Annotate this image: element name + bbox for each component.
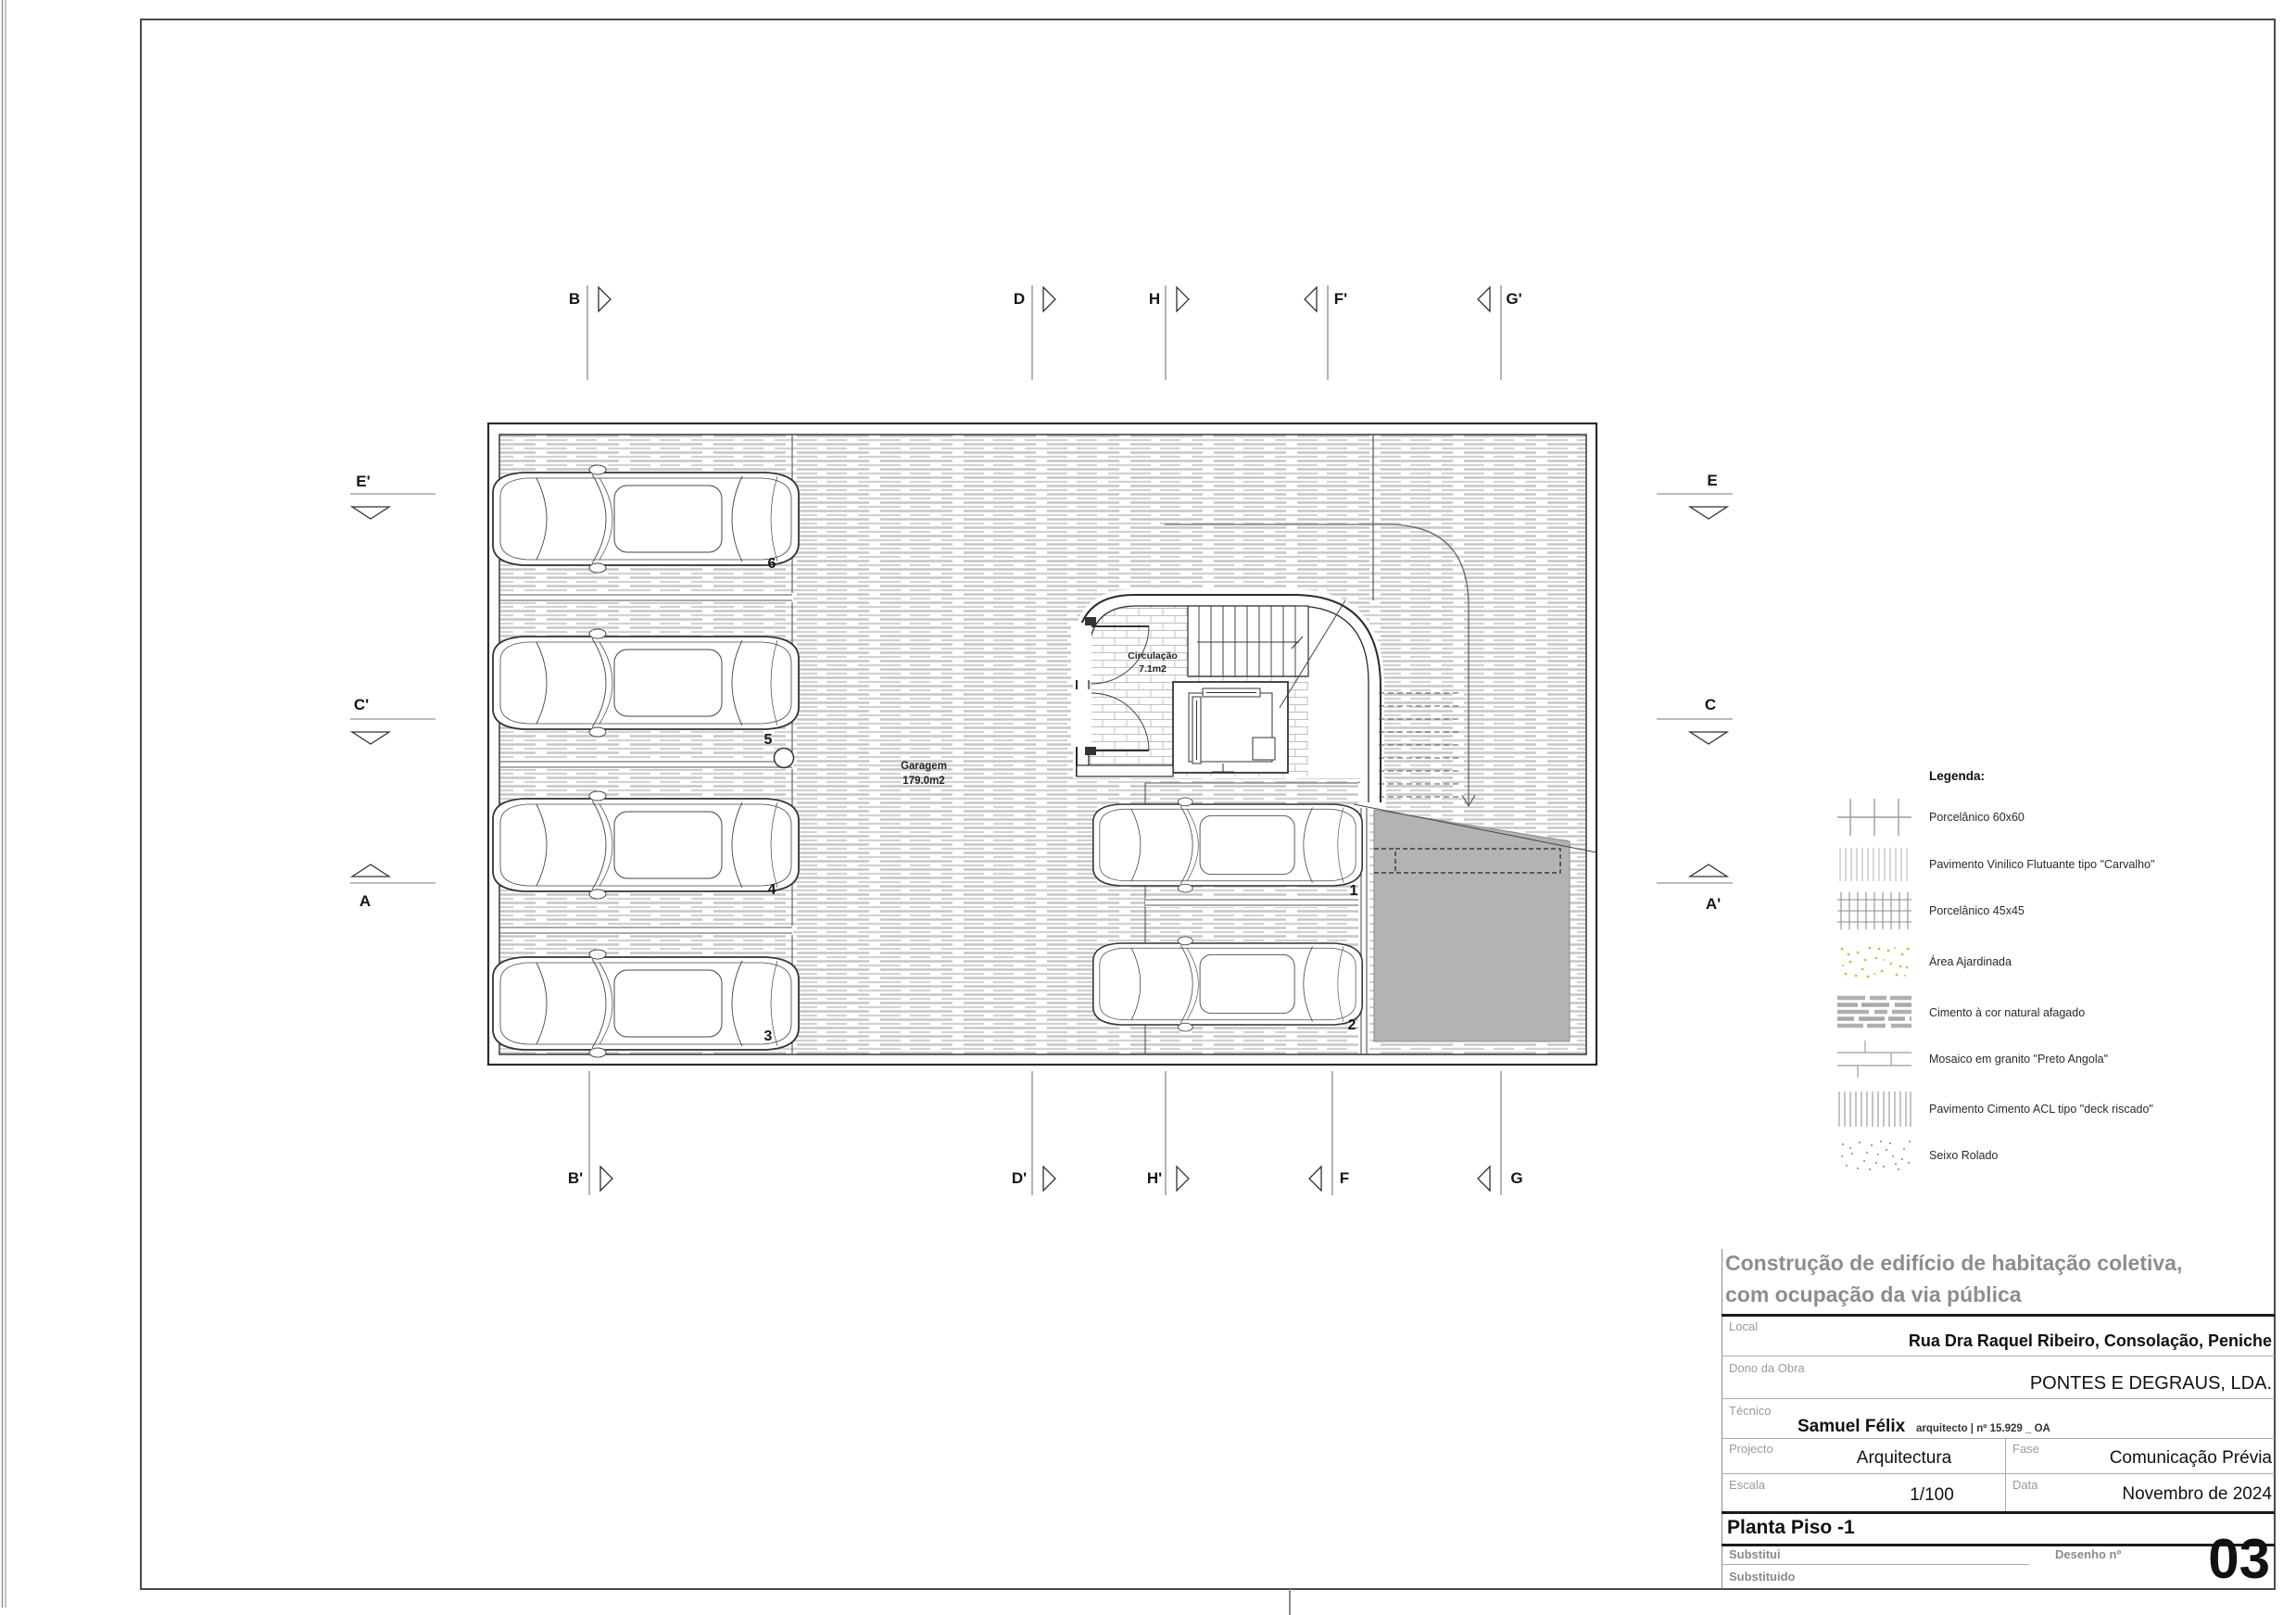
floor-plan-drawing [0, 0, 2296, 1615]
legend-item-label: Porcelânico 45x45 [1929, 904, 2025, 917]
fase-value: Comunicação Prévia [2110, 1448, 2272, 1469]
parking-number-6: 6 [768, 556, 776, 573]
substituido-label: Substituido [1729, 1570, 1796, 1583]
swatch-cimento-icon [1837, 994, 1911, 1031]
car [1093, 798, 1362, 892]
stairs [1188, 606, 1308, 676]
section-arrow-icon [1690, 864, 1727, 877]
car [1093, 937, 1362, 1031]
room-name-garagem: Garagem [901, 761, 947, 772]
car [493, 465, 799, 573]
elevator [1173, 682, 1288, 773]
room-name-circulacao: Circulação [1128, 650, 1178, 662]
desenho-n-value: 03 [2208, 1533, 2270, 1586]
section-arrow-icon [1478, 287, 1490, 311]
desenho-n-label: Desenho nº [2055, 1547, 2121, 1561]
local-value: Rua Dra Raquel Ribeiro, Consolação, Peni… [1909, 1331, 2272, 1351]
section-label-A: A [360, 892, 371, 911]
parking-number-5: 5 [764, 732, 773, 749]
section-label-G2: G' [1506, 290, 1521, 309]
section-label-C2: C' [354, 696, 369, 714]
section-label-F2: F' [1334, 290, 1347, 309]
data-label: Data [2012, 1478, 2037, 1492]
section-label-H: H [1149, 290, 1160, 309]
section-arrow-icon [1177, 1167, 1189, 1191]
fase-label: Fase [2012, 1442, 2039, 1456]
legend-item-label: Porcelânico 60x60 [1929, 811, 2025, 824]
section-label-E: E [1707, 472, 1717, 490]
projecto-value: Arquitectura [1857, 1448, 1951, 1469]
section-label-H2: H' [1147, 1169, 1162, 1188]
car [493, 791, 799, 899]
structural-column [775, 749, 794, 768]
project-title-line1: Construção de edifício de habitação cole… [1725, 1251, 2182, 1276]
section-arrow-icon [352, 864, 389, 877]
swatch-vinilico-icon [1837, 846, 1911, 883]
legend-item-label: Pavimento Vinilico Flutuante tipo "Carva… [1929, 858, 2155, 871]
project-title-line2: com ocupação da via pública [1725, 1282, 2022, 1307]
legend-title: Legenda: [1929, 769, 1985, 783]
dono-da-obra-value: PONTES E DEGRAUS, LDA. [2030, 1373, 2272, 1394]
drawing-sheet: { "sheet": { "project_title_line1": "Con… [0, 0, 2296, 1615]
escala-value: 1/100 [1910, 1485, 1954, 1506]
car [493, 629, 799, 737]
swatch-ajardinada-icon [1837, 943, 1911, 980]
swatch-porcelanico-60x60-icon [1837, 799, 1911, 836]
section-arrow-icon [1177, 287, 1189, 311]
section-arrow-icon [599, 287, 611, 311]
section-arrow-icon [1043, 287, 1055, 311]
section-label-A2: A' [1706, 895, 1721, 914]
section-label-B2: B' [568, 1169, 583, 1188]
legend-item-label: Cimento à cor natural afagado [1929, 1006, 2085, 1019]
ramp-pit [1374, 810, 1570, 1041]
room-area-garagem: 179.0m2 [902, 776, 944, 787]
projecto-label: Projecto [1729, 1442, 1773, 1456]
room-area-circulacao: 7.1m2 [1139, 663, 1167, 675]
legend-item-label: Mosaico em granito "Preto Angola" [1929, 1053, 2108, 1066]
section-arrow-icon [1478, 1167, 1490, 1191]
section-arrow-icon [600, 1167, 612, 1191]
section-label-F: F [1340, 1169, 1349, 1188]
tecnico-credentials: arquitecto | nº 15.929 _ OA [1916, 1423, 2050, 1434]
section-arrow-icon [1690, 507, 1727, 519]
legend-item-label: Área Ajardinada [1929, 955, 2012, 968]
section-arrow-icon [1043, 1167, 1055, 1191]
section-arrow-icon [1309, 1167, 1321, 1191]
swatch-mosaico-icon [1837, 1041, 1911, 1078]
substitui-label: Substitui [1729, 1547, 1781, 1561]
legend-item-label: Seixo Rolado [1929, 1149, 1998, 1162]
data-value: Novembro de 2024 [2122, 1484, 2272, 1505]
parking-number-2: 2 [1348, 1017, 1356, 1034]
parking-number-4: 4 [768, 882, 776, 899]
section-arrow-icon [352, 732, 389, 744]
section-label-C: C [1705, 696, 1716, 714]
parking-number-1: 1 [1350, 883, 1358, 900]
tecnico-label: Técnico [1729, 1404, 1772, 1418]
local-label: Local [1729, 1319, 1758, 1333]
legend-item-label: Pavimento Cimento ACL tipo "deck riscado… [1929, 1103, 2153, 1116]
section-arrow-icon [1305, 287, 1317, 311]
section-arrow-icon [352, 507, 389, 519]
dono-da-obra-label: Dono da Obra [1729, 1361, 1805, 1375]
stair-core [1071, 589, 1386, 808]
section-arrow-icon [1690, 732, 1727, 744]
tecnico-name: Samuel Félix [1798, 1417, 1905, 1437]
drawing-title: Planta Piso -1 [1727, 1517, 1855, 1539]
elevator-counterweight [1253, 738, 1275, 760]
section-label-E2: E' [356, 473, 370, 491]
car [493, 950, 799, 1057]
swatch-seixo-icon [1837, 1137, 1911, 1174]
section-label-G: G [1510, 1169, 1522, 1188]
section-label-D2: D' [1012, 1169, 1027, 1188]
escala-label: Escala [1729, 1478, 1765, 1492]
section-label-B: B [569, 290, 580, 309]
parking-number-3: 3 [764, 1028, 773, 1045]
swatch-deck-riscado-icon [1837, 1091, 1911, 1128]
section-label-D: D [1014, 290, 1025, 309]
swatch-porcelanico-45x45-icon [1837, 892, 1911, 929]
